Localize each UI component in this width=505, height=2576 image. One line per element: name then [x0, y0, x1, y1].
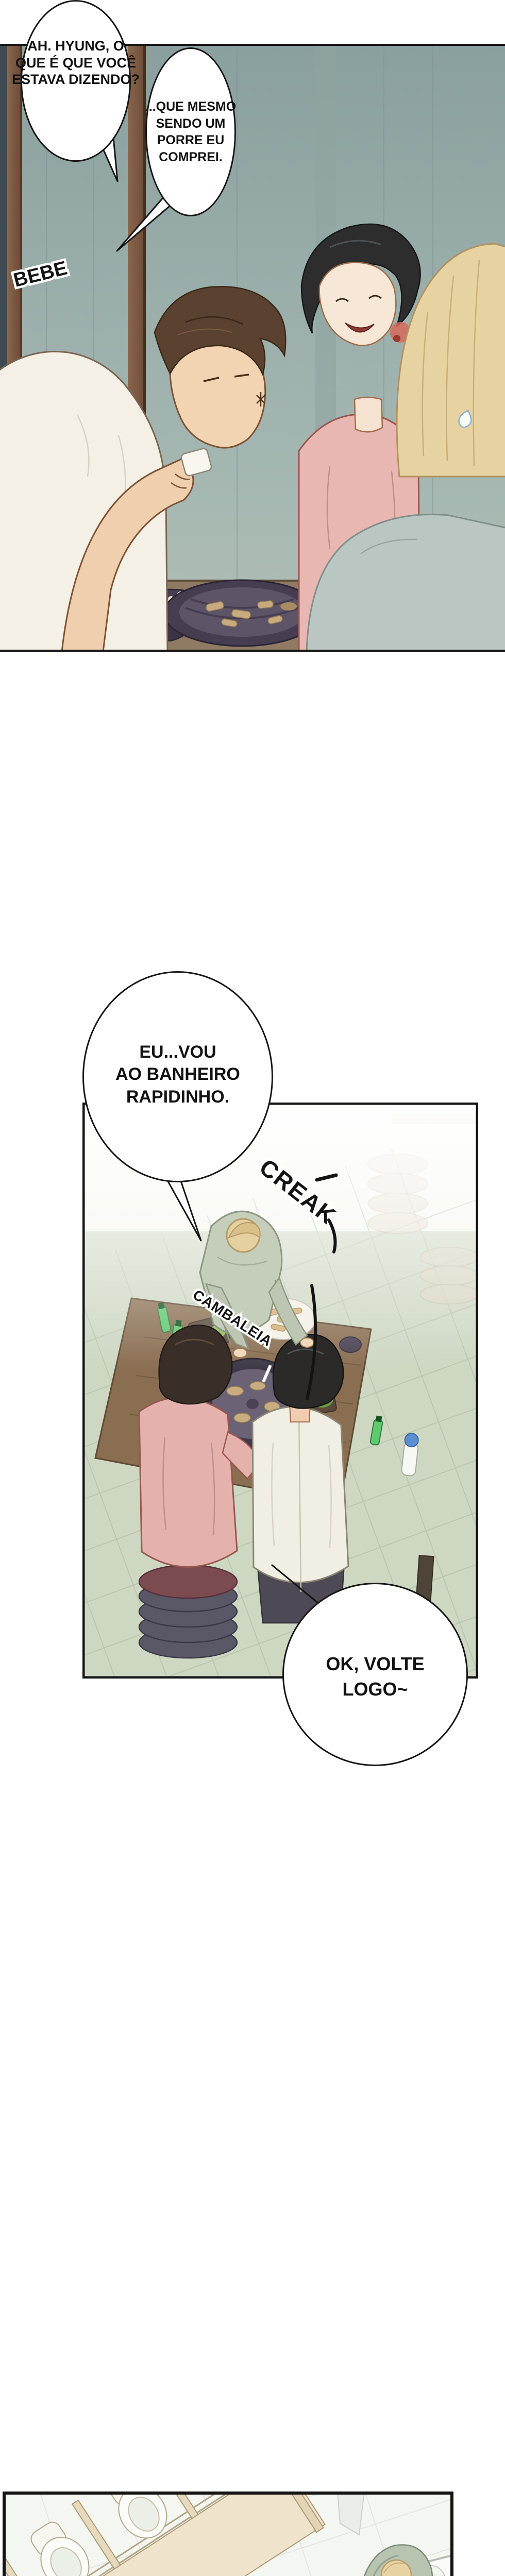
bubble-1-line: ESTAVA DIZENDO? [12, 71, 140, 88]
grill [164, 580, 321, 646]
bubble-4-line: OK, VOLTE [326, 1652, 424, 1677]
speech-bubble-4: OK, VOLTE LOGO~ [282, 1583, 468, 1766]
panel-3-restroom-overhead [3, 2492, 453, 2576]
bubble-1-line: AH. HYUNG, O [27, 38, 124, 55]
speech-bubble-2: ...QUE MESMO SENDO UM PORRE EU COMPREI. [145, 47, 236, 216]
seated-man-pink-hair [159, 1325, 232, 1404]
bubble-2-line: ...QUE MESMO [145, 98, 236, 115]
speech-bubble-1: AH. HYUNG, O QUE É QUE VOCÊ ESTAVA DIZEN… [21, 0, 131, 162]
bubble-3-line: RAPIDINHO. [126, 1086, 229, 1109]
bubble-3-line: AO BANHEIRO [115, 1063, 240, 1086]
bubble-2-line: COMPREI. [159, 149, 223, 166]
bubble-1-line: QUE É QUE VOCÊ [15, 55, 136, 72]
bubble-2-line: PORRE EU [157, 132, 225, 149]
bubble-2-line: SENDO UM [156, 115, 226, 132]
bubble-3-line: EU...VOU [139, 1041, 216, 1064]
bubble-4-line: LOGO~ [342, 1677, 408, 1702]
speech-bubble-3: EU...VOU AO BANHEIRO RAPIDINHO. [82, 971, 273, 1182]
comic-page: BEBE [0, 0, 505, 2576]
